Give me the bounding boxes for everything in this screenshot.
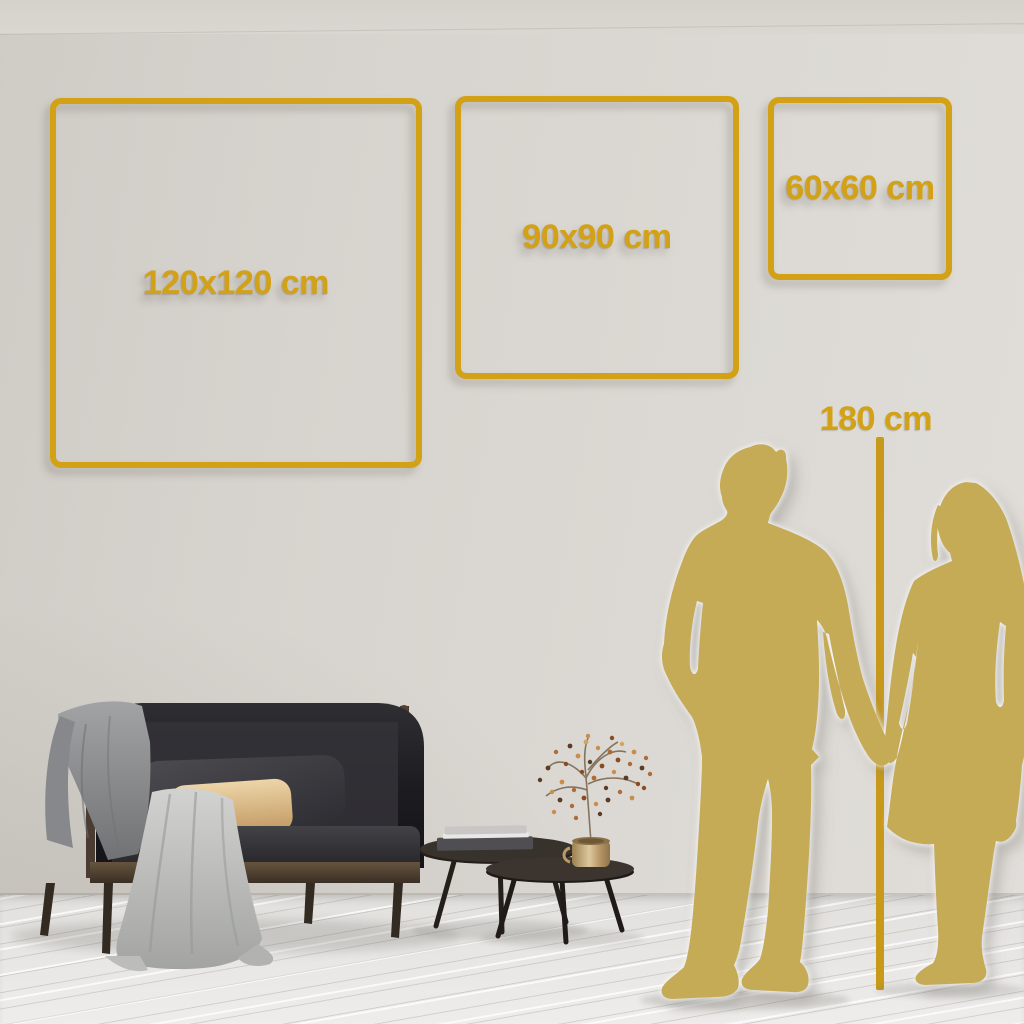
couple-silhouettes bbox=[661, 444, 1024, 999]
books-illustration bbox=[437, 825, 533, 851]
woman-silhouette bbox=[885, 482, 1024, 985]
coffee-tables-illustration bbox=[420, 734, 652, 942]
size-guide-image: 120x120 cm 90x90 cm 60x60 cm 180 cm bbox=[0, 0, 1024, 1024]
plant-illustration bbox=[538, 734, 652, 842]
height-line bbox=[876, 437, 884, 990]
man-silhouette bbox=[661, 444, 891, 999]
plant-berries bbox=[538, 734, 652, 820]
scene-svg bbox=[0, 0, 1024, 1024]
